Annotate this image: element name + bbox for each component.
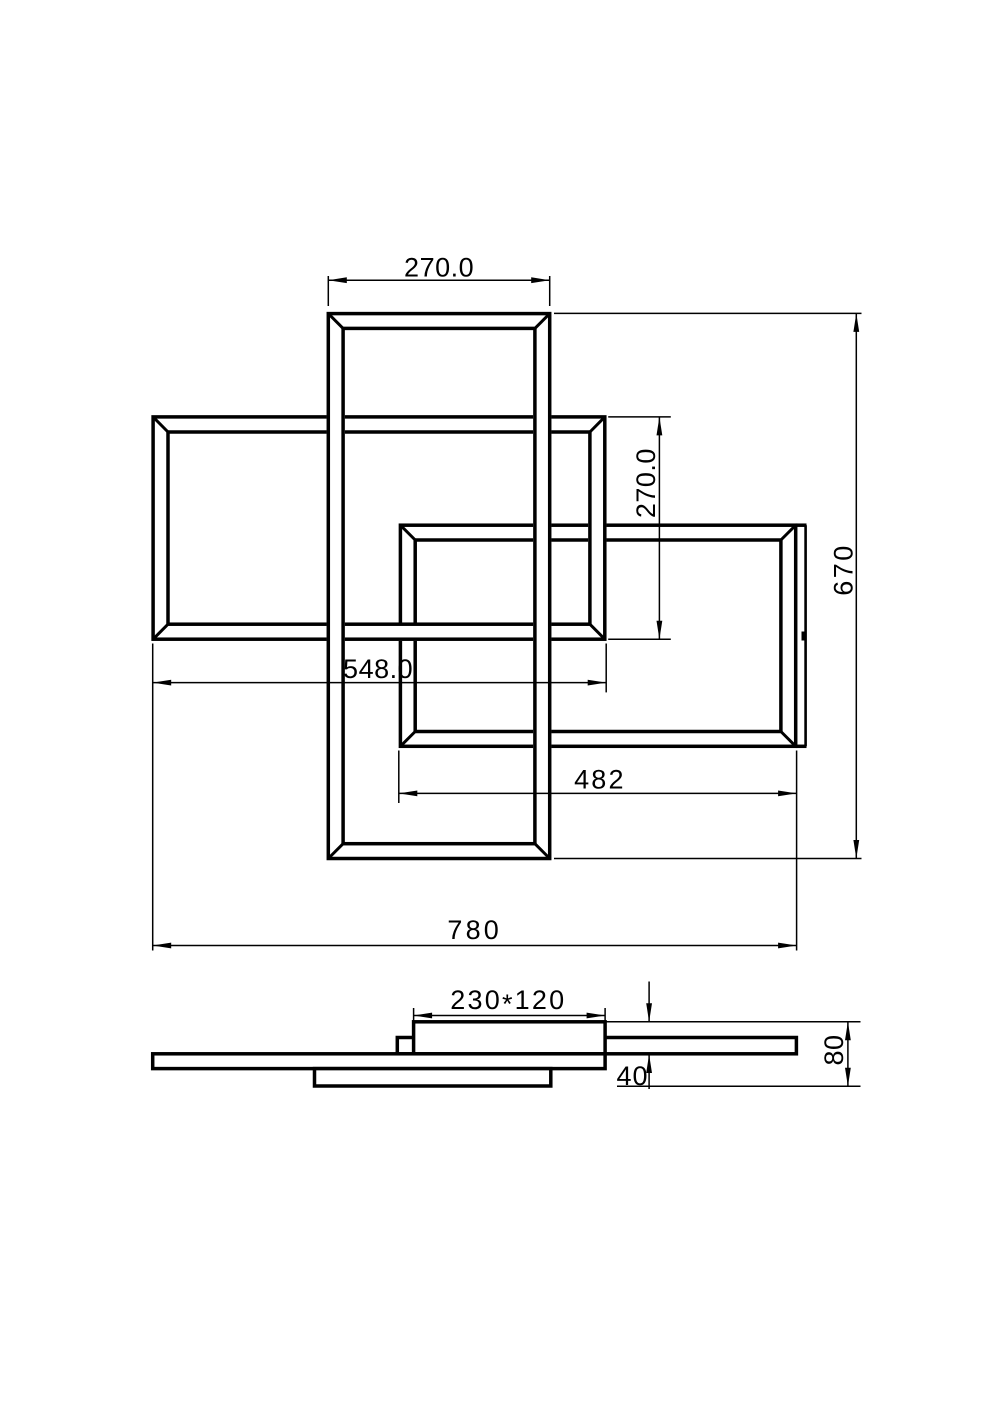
svg-text:230*120: 230*120: [450, 985, 566, 1019]
svg-text:780: 780: [447, 915, 502, 945]
svg-text:548.0: 548.0: [343, 654, 413, 684]
svg-text:670: 670: [829, 543, 859, 596]
svg-text:80: 80: [819, 1034, 849, 1065]
svg-text:482: 482: [574, 765, 626, 795]
svg-text:270.0: 270.0: [404, 253, 474, 283]
svg-text:270.0: 270.0: [631, 448, 661, 518]
